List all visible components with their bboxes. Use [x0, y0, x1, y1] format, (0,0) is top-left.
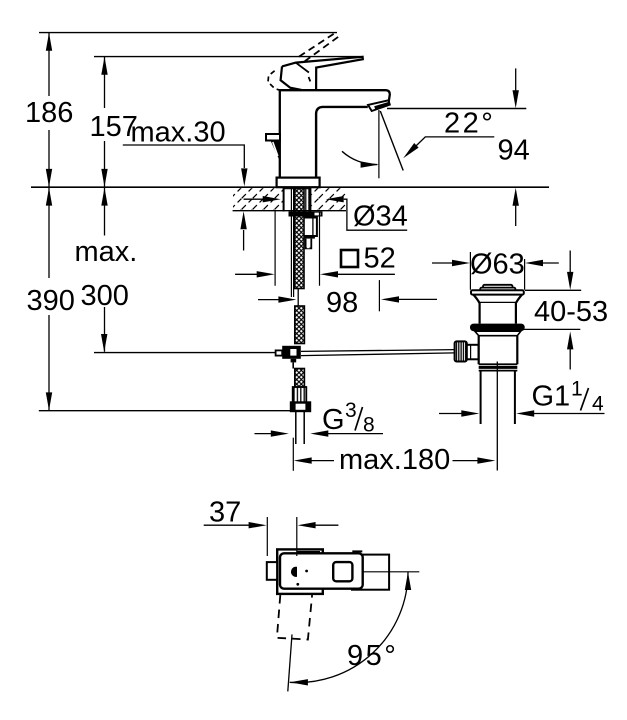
svg-text:4: 4 — [592, 393, 604, 416]
svg-text:max.30: max.30 — [131, 117, 226, 149]
svg-text:G: G — [322, 404, 345, 436]
svg-text:40-53: 40-53 — [534, 296, 608, 328]
svg-text:Ø34: Ø34 — [353, 201, 408, 233]
svg-text:390: 390 — [27, 285, 75, 317]
svg-text:37: 37 — [209, 497, 241, 529]
svg-text:95°: 95° — [347, 640, 398, 672]
svg-text:186: 186 — [25, 97, 73, 129]
svg-text:Ø63: Ø63 — [470, 249, 525, 281]
svg-text:G1: G1 — [532, 381, 571, 413]
svg-text:8: 8 — [363, 414, 375, 437]
svg-text:300: 300 — [81, 280, 129, 312]
svg-text:max.: max. — [75, 236, 138, 268]
svg-text:3: 3 — [345, 399, 357, 422]
svg-text:94: 94 — [498, 135, 530, 167]
svg-text:1: 1 — [571, 378, 583, 401]
svg-text:max.180: max.180 — [339, 444, 450, 476]
svg-text:22°: 22° — [444, 108, 495, 140]
svg-text:98: 98 — [326, 287, 358, 319]
svg-text:52: 52 — [364, 243, 396, 275]
